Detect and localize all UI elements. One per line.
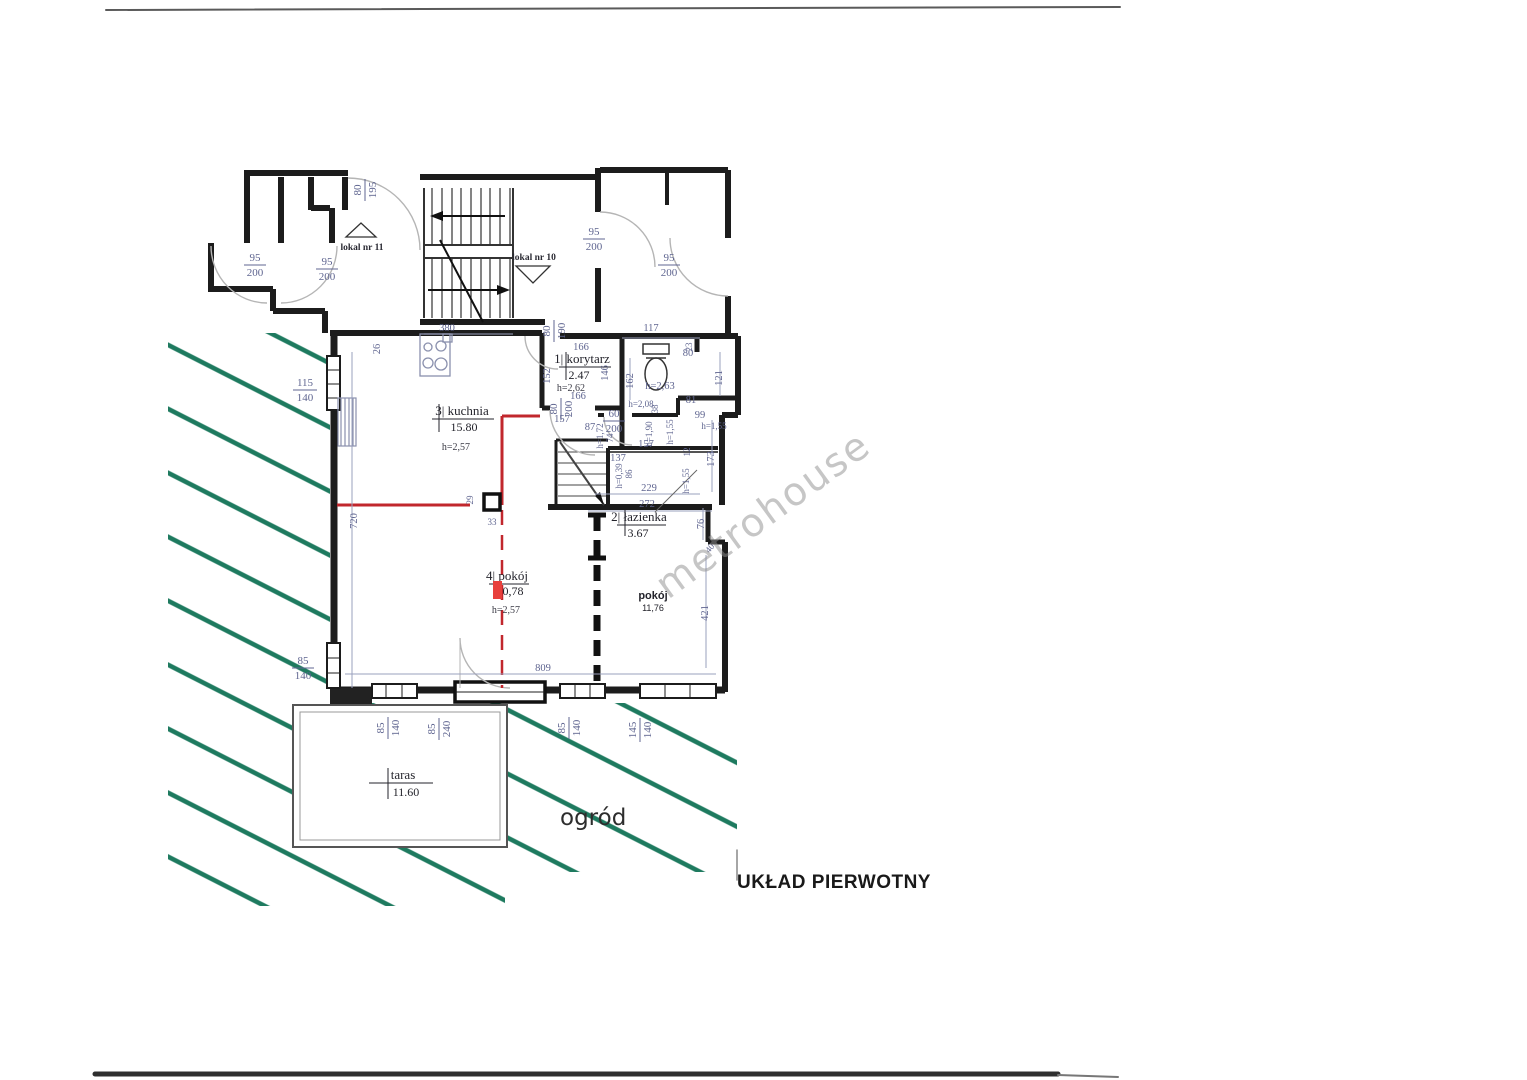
svg-text:taras: taras — [391, 767, 416, 782]
svg-text:38: 38 — [650, 404, 660, 414]
svg-text:h=2,57: h=2,57 — [492, 605, 520, 616]
svg-text:33: 33 — [488, 517, 498, 527]
svg-text:140: 140 — [642, 721, 654, 738]
svg-text:23: 23 — [684, 342, 694, 352]
garden-label: ogród — [560, 805, 626, 831]
floor-plan-canvas: lokal nr 11 lokal nr 10 3| kuchnia 15.80… — [0, 0, 1527, 1080]
svg-text:229: 229 — [641, 483, 657, 494]
svg-text:11,76: 11,76 — [642, 603, 664, 613]
svg-text:421: 421 — [700, 605, 711, 621]
svg-text:166: 166 — [573, 342, 589, 353]
svg-text:85: 85 — [298, 655, 310, 667]
wall-block — [330, 688, 372, 704]
svg-text:12: 12 — [682, 448, 692, 457]
svg-text:3.67: 3.67 — [628, 526, 649, 540]
svg-text:81: 81 — [686, 395, 697, 406]
svg-text:80: 80 — [548, 403, 560, 415]
plan-title: UKŁAD PIERWOTNY — [737, 872, 931, 893]
svg-text:2| łazienka: 2| łazienka — [611, 509, 667, 524]
svg-text:29: 29 — [465, 495, 475, 505]
svg-text:152: 152 — [542, 368, 553, 384]
lokal-10-label: lokal nr 10 — [512, 253, 556, 263]
svg-text:137: 137 — [610, 453, 626, 464]
svg-text:15.80: 15.80 — [451, 420, 478, 434]
svg-text:0,78: 0,78 — [503, 584, 524, 598]
svg-text:1| korytarz: 1| korytarz — [554, 351, 610, 366]
svg-text:95: 95 — [589, 226, 601, 238]
svg-text:76: 76 — [696, 519, 707, 530]
svg-text:200: 200 — [247, 267, 264, 279]
svg-text:11.60: 11.60 — [393, 785, 420, 799]
svg-text:h=1,72: h=1,72 — [595, 423, 605, 448]
svg-text:240: 240 — [441, 720, 453, 737]
svg-text:h=2,63: h=2,63 — [645, 381, 675, 392]
svg-text:157: 157 — [554, 414, 570, 425]
svg-text:85: 85 — [556, 722, 568, 734]
svg-text:80: 80 — [541, 325, 553, 337]
svg-text:121: 121 — [714, 370, 725, 386]
svg-text:h=0,39: h=0,39 — [614, 463, 624, 489]
svg-text:95: 95 — [664, 252, 676, 264]
svg-text:4| pokój: 4| pokój — [486, 568, 528, 583]
svg-text:380: 380 — [439, 323, 455, 334]
svg-text:80: 80 — [352, 184, 364, 196]
svg-text:74: 74 — [605, 433, 615, 443]
svg-text:115: 115 — [297, 377, 314, 389]
svg-text:h=1,55: h=1,55 — [681, 468, 691, 494]
svg-text:2.47: 2.47 — [569, 368, 590, 382]
svg-text:26: 26 — [372, 344, 383, 355]
svg-text:200: 200 — [606, 423, 623, 435]
svg-text:117: 117 — [643, 323, 658, 334]
svg-text:140: 140 — [295, 670, 312, 682]
svg-text:272: 272 — [639, 499, 655, 510]
pillar — [484, 494, 500, 510]
svg-text:85: 85 — [375, 722, 387, 734]
svg-text:200: 200 — [319, 271, 336, 283]
svg-text:166: 166 — [570, 391, 586, 402]
svg-text:195: 195 — [367, 181, 379, 198]
svg-text:157: 157 — [638, 439, 654, 450]
svg-text:162: 162 — [625, 373, 636, 389]
svg-text:809: 809 — [535, 663, 551, 674]
svg-text:h=1,55: h=1,55 — [665, 419, 675, 445]
svg-text:h=1,55: h=1,55 — [701, 421, 727, 431]
red-marker — [493, 581, 502, 599]
svg-text:140: 140 — [390, 719, 402, 736]
svg-text:h=2,57: h=2,57 — [442, 442, 470, 453]
scanned-floor-plan-page: lokal nr 11 lokal nr 10 3| kuchnia 15.80… — [0, 0, 1527, 1080]
svg-text:95: 95 — [250, 252, 262, 264]
svg-text:190: 190 — [556, 322, 568, 339]
svg-text:99: 99 — [695, 410, 706, 421]
svg-text:87: 87 — [585, 422, 596, 433]
svg-text:85: 85 — [426, 723, 438, 735]
svg-text:145: 145 — [627, 721, 639, 738]
svg-text:200: 200 — [586, 241, 603, 253]
svg-text:200: 200 — [661, 267, 678, 279]
svg-text:140: 140 — [571, 719, 583, 736]
svg-text:60: 60 — [609, 408, 621, 420]
svg-text:720: 720 — [349, 513, 360, 529]
lokal-11-label: lokal nr 11 — [340, 243, 383, 253]
svg-text:146: 146 — [600, 365, 611, 381]
svg-text:95: 95 — [322, 256, 334, 268]
svg-text:140: 140 — [297, 392, 314, 404]
svg-text:3| kuchnia: 3| kuchnia — [435, 403, 489, 418]
svg-text:86: 86 — [624, 469, 634, 479]
svg-text:173: 173 — [706, 451, 717, 467]
